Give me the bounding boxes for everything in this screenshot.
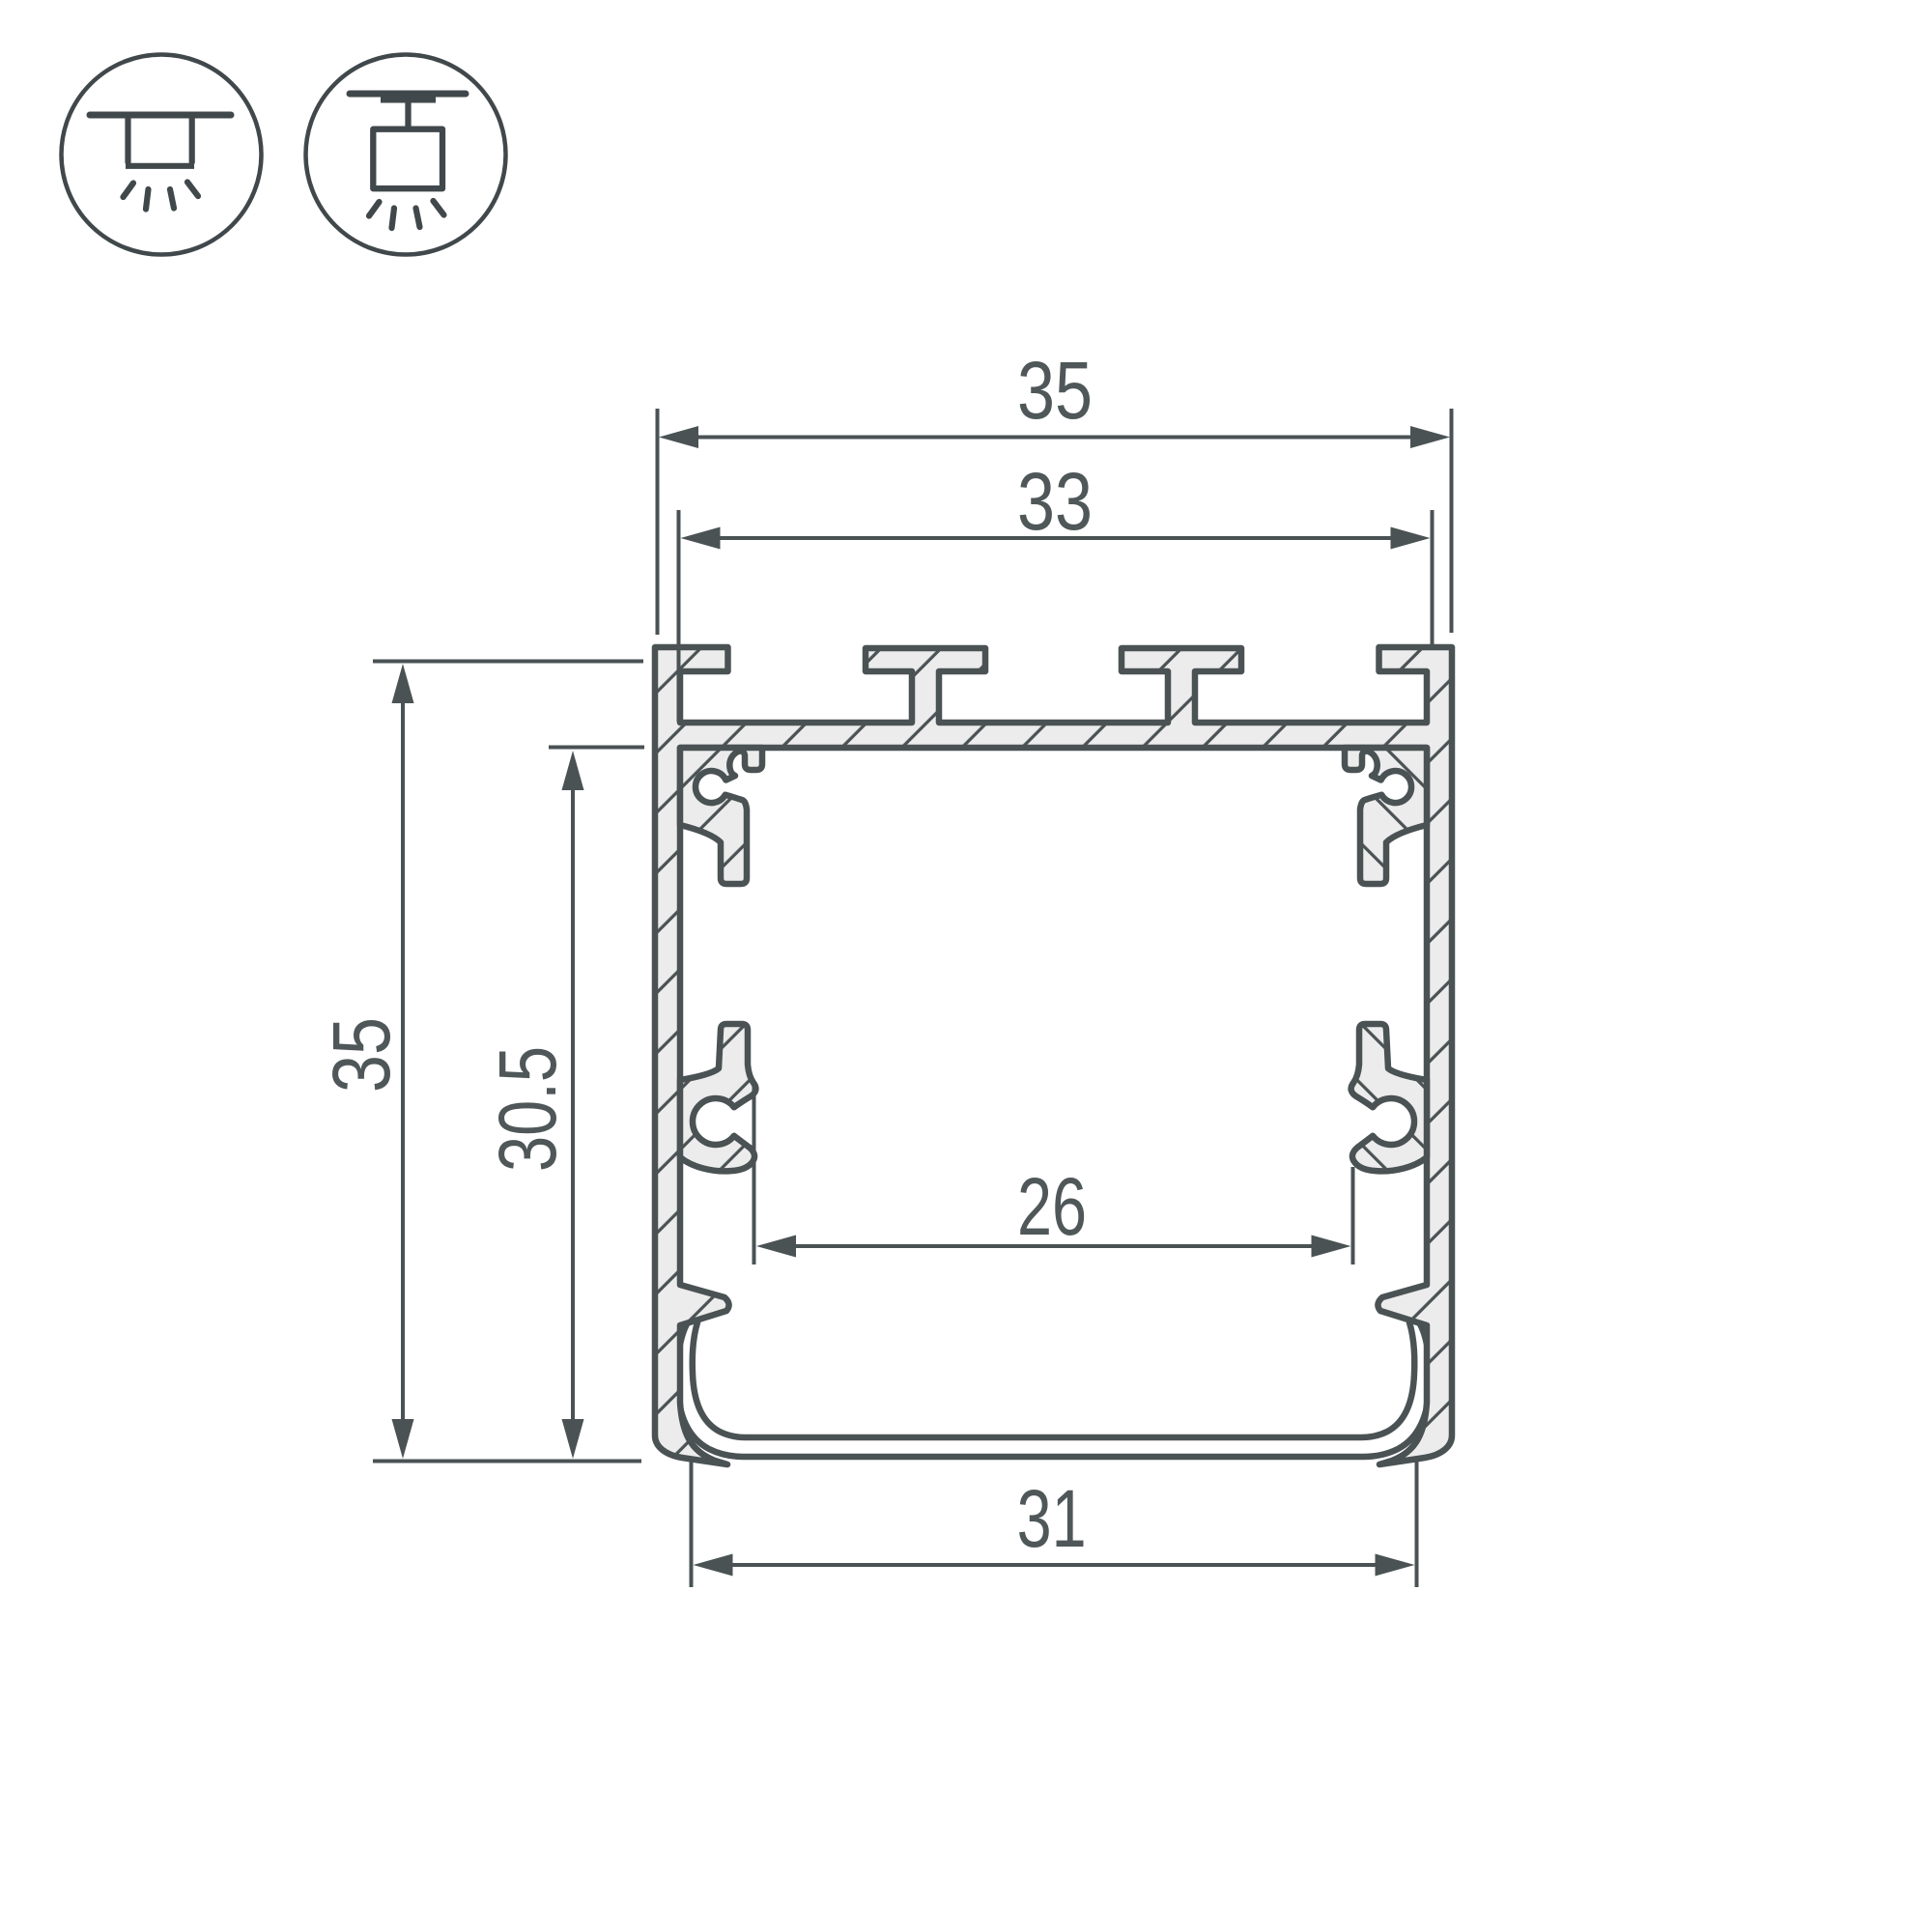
svg-text:35: 35 [316, 1017, 407, 1093]
svg-text:31: 31 [1017, 1473, 1087, 1564]
svg-text:33: 33 [1017, 456, 1093, 547]
svg-text:35: 35 [1017, 345, 1093, 436]
svg-text:26: 26 [1017, 1161, 1087, 1252]
svg-text:30.5: 30.5 [482, 1046, 573, 1172]
